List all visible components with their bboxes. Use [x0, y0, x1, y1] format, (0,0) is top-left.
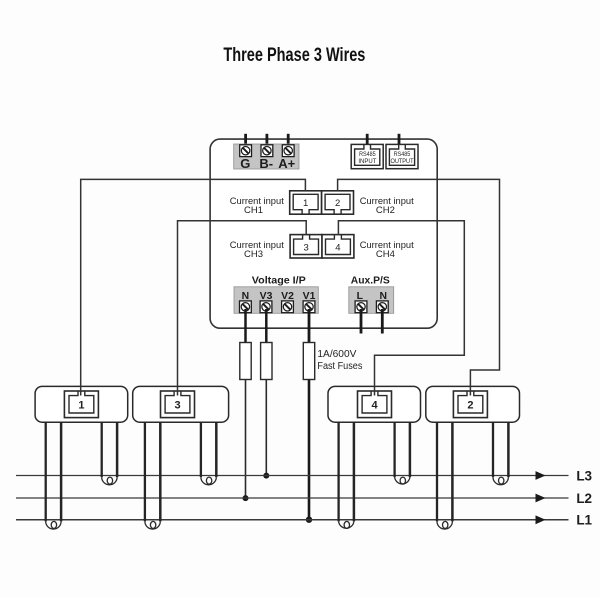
svg-text:Voltage I/P: Voltage I/P	[252, 274, 306, 286]
svg-text:2: 2	[467, 400, 473, 412]
svg-text:1: 1	[303, 198, 308, 209]
svg-text:CH2: CH2	[376, 205, 395, 216]
svg-text:3: 3	[174, 400, 180, 412]
svg-text:G: G	[240, 156, 250, 171]
svg-text:2: 2	[335, 198, 340, 209]
svg-text:CH4: CH4	[376, 249, 395, 260]
svg-text:Three Phase 3 Wires: Three Phase 3 Wires	[223, 44, 365, 66]
svg-text:CH1: CH1	[244, 205, 263, 216]
svg-text:A+: A+	[278, 156, 295, 171]
svg-text:INPUT: INPUT	[358, 158, 376, 165]
svg-text:Aux.P/S: Aux.P/S	[351, 274, 390, 286]
svg-text:1: 1	[78, 400, 84, 412]
svg-text:CH3: CH3	[244, 249, 263, 260]
svg-text:B-: B-	[259, 156, 273, 171]
svg-text:L1: L1	[576, 513, 592, 528]
svg-text:1A/600V: 1A/600V	[317, 349, 356, 360]
svg-text:4: 4	[335, 243, 340, 254]
svg-text:L2: L2	[576, 491, 592, 506]
svg-text:4: 4	[371, 400, 378, 412]
svg-text:L3: L3	[576, 468, 592, 483]
svg-text:OUTPUT: OUTPUT	[391, 158, 414, 165]
svg-text:3: 3	[303, 243, 308, 254]
svg-text:Fast Fuses: Fast Fuses	[317, 361, 362, 372]
